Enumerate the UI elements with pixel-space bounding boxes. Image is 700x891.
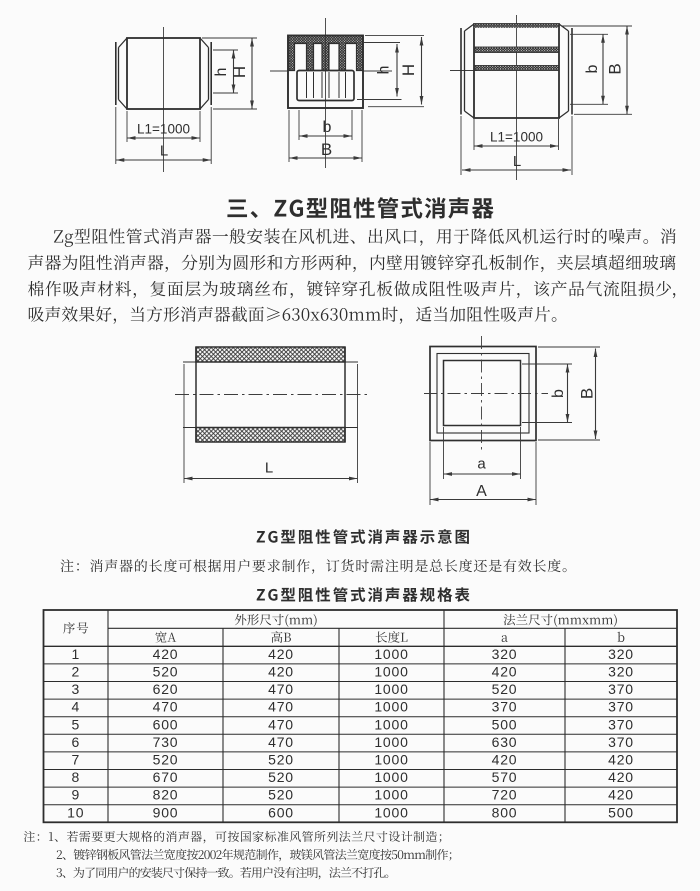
svg-text:500: 500	[492, 716, 518, 732]
svg-text:600: 600	[268, 804, 294, 820]
svg-text:420: 420	[608, 769, 634, 785]
svg-text:820: 820	[153, 787, 179, 803]
svg-text:320: 320	[608, 646, 634, 662]
svg-text:720: 720	[492, 787, 518, 803]
svg-text:470: 470	[268, 716, 294, 732]
svg-text:470: 470	[268, 734, 294, 750]
svg-text:h: h	[376, 66, 393, 75]
svg-text:520: 520	[153, 752, 179, 768]
svg-text:570: 570	[492, 769, 518, 785]
svg-text:370: 370	[608, 681, 634, 697]
svg-text:900: 900	[153, 804, 179, 820]
svg-text:420: 420	[608, 787, 634, 803]
svg-text:3: 3	[71, 681, 80, 697]
svg-text:2: 2	[71, 664, 80, 680]
svg-text:B: B	[321, 140, 332, 159]
svg-text:420: 420	[268, 664, 294, 680]
svg-text:800: 800	[492, 804, 518, 820]
svg-text:L: L	[265, 460, 273, 477]
svg-text:1000: 1000	[374, 752, 408, 768]
svg-text:520: 520	[268, 787, 294, 803]
svg-text:630: 630	[492, 734, 518, 750]
svg-text:320: 320	[608, 664, 634, 680]
svg-text:h: h	[213, 68, 230, 77]
svg-text:b: b	[550, 389, 567, 398]
svg-text:520: 520	[268, 752, 294, 768]
svg-text:370: 370	[608, 716, 634, 732]
svg-text:H: H	[399, 64, 418, 76]
svg-text:B: B	[606, 63, 625, 74]
svg-text:1000: 1000	[374, 681, 408, 697]
svg-text:a: a	[477, 456, 486, 473]
svg-text:600: 600	[153, 716, 179, 732]
svg-text:520: 520	[268, 769, 294, 785]
svg-text:1000: 1000	[374, 804, 408, 820]
svg-text:520: 520	[492, 681, 518, 697]
svg-text:b: b	[323, 119, 332, 136]
svg-text:420: 420	[153, 646, 179, 662]
svg-text:520: 520	[153, 664, 179, 680]
svg-text:320: 320	[492, 646, 518, 662]
svg-text:370: 370	[492, 699, 518, 715]
svg-text:A: A	[476, 483, 487, 500]
svg-text:6: 6	[71, 734, 80, 750]
svg-text:500: 500	[608, 804, 634, 820]
svg-text:420: 420	[268, 646, 294, 662]
svg-text:1000: 1000	[374, 664, 408, 680]
svg-text:620: 620	[153, 681, 179, 697]
svg-text:L1=1000: L1=1000	[490, 130, 543, 145]
svg-text:7: 7	[71, 752, 80, 768]
svg-text:470: 470	[153, 699, 179, 715]
svg-text:370: 370	[608, 699, 634, 715]
svg-text:1: 1	[71, 646, 80, 662]
svg-text:1000: 1000	[374, 646, 408, 662]
svg-text:670: 670	[153, 769, 179, 785]
svg-text:1000: 1000	[374, 699, 408, 715]
svg-text:420: 420	[608, 752, 634, 768]
svg-text:L: L	[160, 143, 168, 160]
svg-text:470: 470	[268, 681, 294, 697]
svg-text:4: 4	[71, 699, 80, 715]
svg-text:420: 420	[492, 664, 518, 680]
svg-text:b: b	[584, 64, 601, 73]
svg-text:420: 420	[492, 752, 518, 768]
svg-text:9: 9	[71, 787, 80, 803]
svg-text:5: 5	[71, 716, 80, 732]
svg-text:1000: 1000	[374, 769, 408, 785]
svg-text:8: 8	[71, 769, 80, 785]
svg-text:L: L	[513, 153, 521, 170]
svg-text:H: H	[230, 66, 249, 78]
svg-text:730: 730	[153, 734, 179, 750]
svg-text:B: B	[578, 388, 597, 399]
svg-text:10: 10	[67, 804, 84, 820]
svg-text:1000: 1000	[374, 734, 408, 750]
svg-text:L1=1000: L1=1000	[137, 122, 190, 137]
svg-text:470: 470	[268, 699, 294, 715]
svg-text:1000: 1000	[374, 716, 408, 732]
svg-text:370: 370	[608, 734, 634, 750]
svg-text:1000: 1000	[374, 787, 408, 803]
